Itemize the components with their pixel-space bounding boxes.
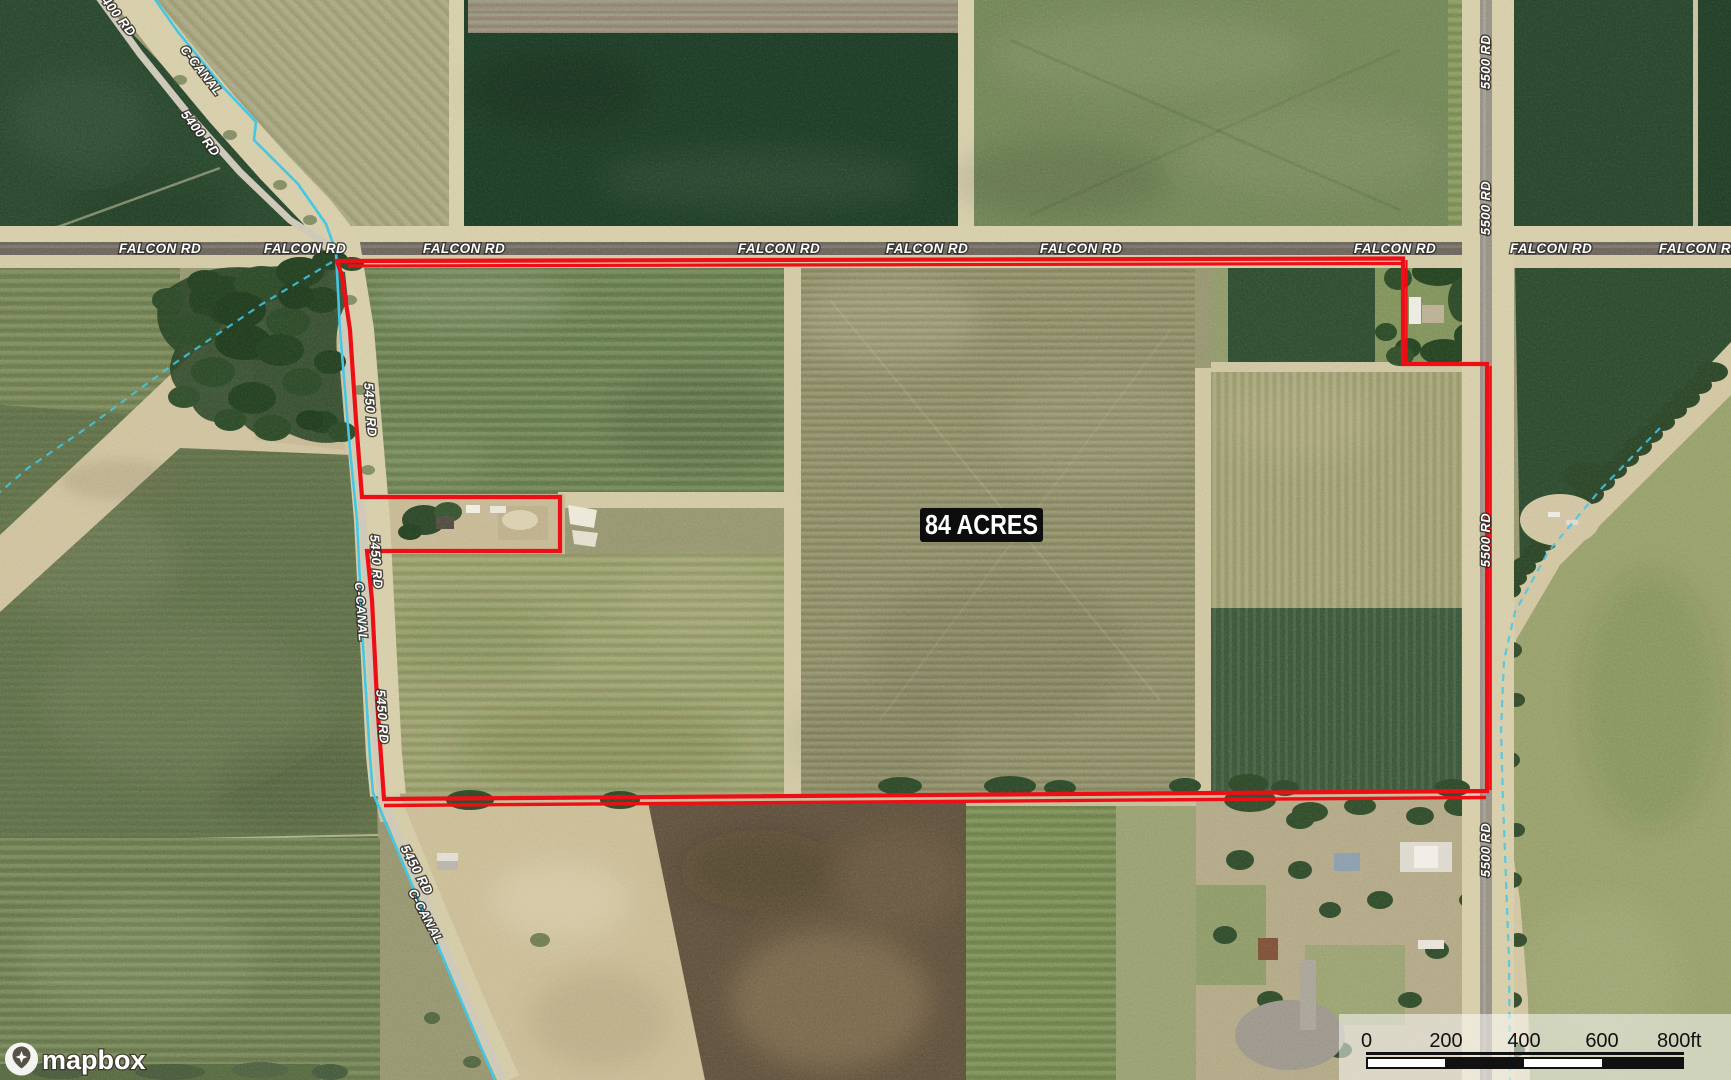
svg-text:FALCON RD: FALCON RD [1510, 241, 1592, 256]
svg-text:0: 0 [1361, 1030, 1372, 1052]
svg-text:FALCON RD: FALCON RD [1354, 241, 1436, 256]
svg-text:FALCON RD: FALCON RD [119, 241, 201, 256]
svg-text:5500 RD: 5500 RD [1478, 181, 1493, 235]
svg-text:FALCON RD: FALCON RD [886, 241, 968, 256]
svg-text:mapbox: mapbox [42, 1045, 146, 1075]
svg-text:FALCON RD: FALCON RD [738, 241, 820, 256]
svg-text:5500 RD: 5500 RD [1478, 823, 1493, 877]
svg-text:800ft: 800ft [1657, 1030, 1702, 1052]
svg-text:5500 RD: 5500 RD [1478, 35, 1493, 89]
svg-text:200: 200 [1429, 1030, 1462, 1052]
svg-text:5500 RD: 5500 RD [1478, 513, 1493, 567]
svg-text:FALCON RD: FALCON RD [264, 241, 346, 256]
svg-text:600: 600 [1585, 1030, 1618, 1052]
svg-text:FALCON RD: FALCON RD [1040, 241, 1122, 256]
svg-text:400: 400 [1507, 1030, 1540, 1052]
svg-text:FALCON RD: FALCON RD [423, 241, 505, 256]
svg-text:84 ACRES: 84 ACRES [925, 509, 1038, 540]
svg-text:FALCON RD: FALCON RD [1659, 241, 1731, 256]
